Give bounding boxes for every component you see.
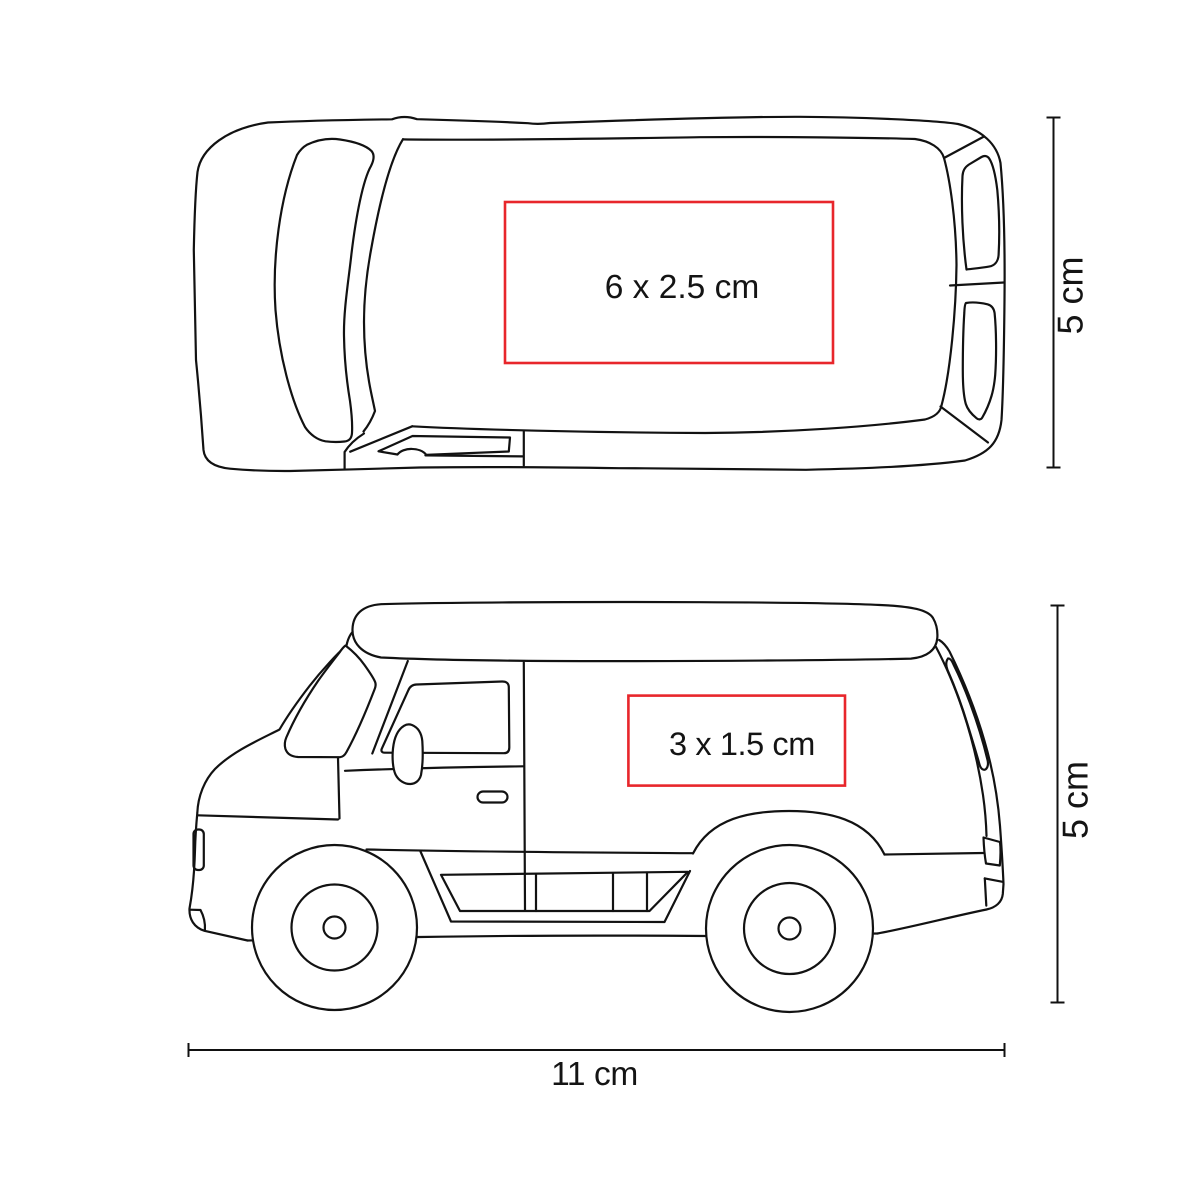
svg-text:11 cm: 11 cm bbox=[551, 1056, 638, 1093]
svg-text:6 x 2.5 cm: 6 x 2.5 cm bbox=[605, 269, 760, 306]
svg-text:5 cm: 5 cm bbox=[1055, 761, 1096, 839]
svg-text:5 cm: 5 cm bbox=[1050, 256, 1091, 334]
svg-text:3 x 1.5 cm: 3 x 1.5 cm bbox=[669, 726, 815, 762]
